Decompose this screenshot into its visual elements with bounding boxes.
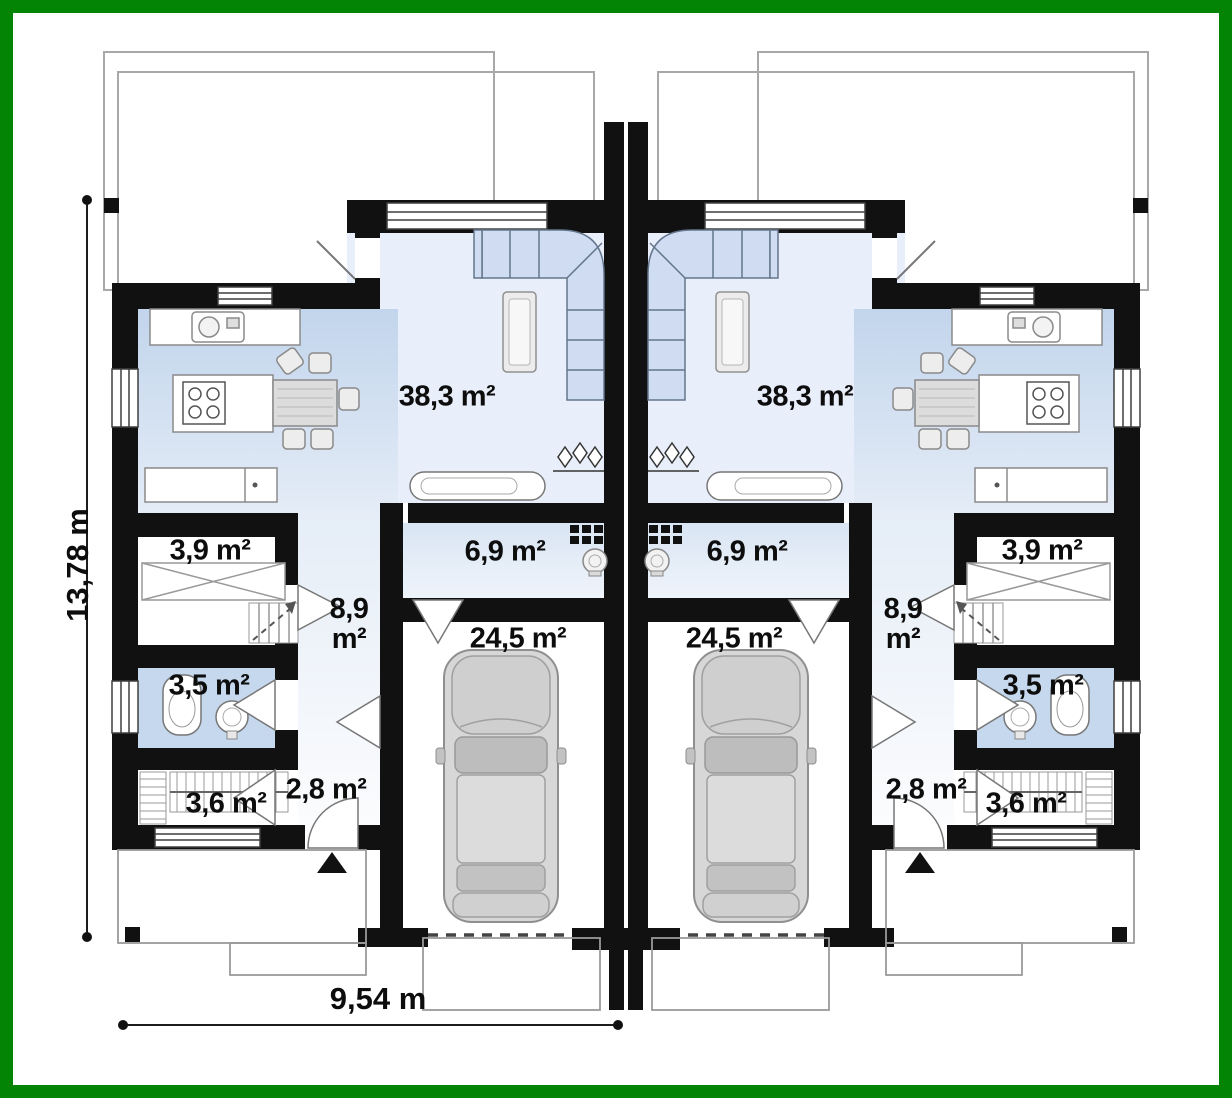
- corridor-value: 8,9: [330, 593, 369, 625]
- room-label-hall-right: 6,9 m²: [707, 536, 788, 569]
- room-label-bath-right: 3,5 m²: [1003, 670, 1084, 703]
- room-label-bath-left: 3,5 m²: [169, 670, 250, 703]
- width-dimension-line: [122, 1024, 618, 1026]
- room-label-hall-left: 6,9 m²: [465, 536, 546, 569]
- height-dimension-label: 13,78 m: [60, 508, 96, 622]
- room-label-vestibule-left: 2,8 m²: [286, 774, 367, 807]
- room-label-garage-right: 24,5 m²: [686, 623, 782, 656]
- width-dimension-label: 9,54 m: [330, 981, 427, 1017]
- labels-layer: 38,3 m² 6,9 m² 24,5 m² 8,9m² 3,9 m² 3,5 …: [0, 0, 1232, 1098]
- room-label-vestibule-right: 2,8 m²: [886, 774, 967, 807]
- dimension-dot: [82, 195, 92, 205]
- room-label-corridor-right: 8,9m²: [884, 595, 923, 655]
- room-label-garage-left: 24,5 m²: [470, 623, 566, 656]
- room-label-wardrobe-left: 3,6 m²: [186, 788, 267, 821]
- room-label-wardrobe-right: 3,6 m²: [986, 788, 1067, 821]
- room-label-storage-right: 3,9 m²: [1002, 535, 1083, 568]
- room-label-living-right: 38,3 m²: [757, 381, 853, 414]
- corridor-unit: m²: [886, 623, 920, 655]
- room-label-living-left: 38,3 m²: [399, 381, 495, 414]
- dimension-dot: [118, 1020, 128, 1030]
- room-label-storage-left: 3,9 m²: [170, 535, 251, 568]
- corridor-unit: m²: [332, 623, 366, 655]
- floor-plan: 38,3 m² 6,9 m² 24,5 m² 8,9m² 3,9 m² 3,5 …: [0, 0, 1232, 1098]
- corridor-value: 8,9: [884, 593, 923, 625]
- dimension-dot: [613, 1020, 623, 1030]
- dimension-dot: [82, 932, 92, 942]
- room-label-corridor-left: 8,9m²: [330, 595, 369, 655]
